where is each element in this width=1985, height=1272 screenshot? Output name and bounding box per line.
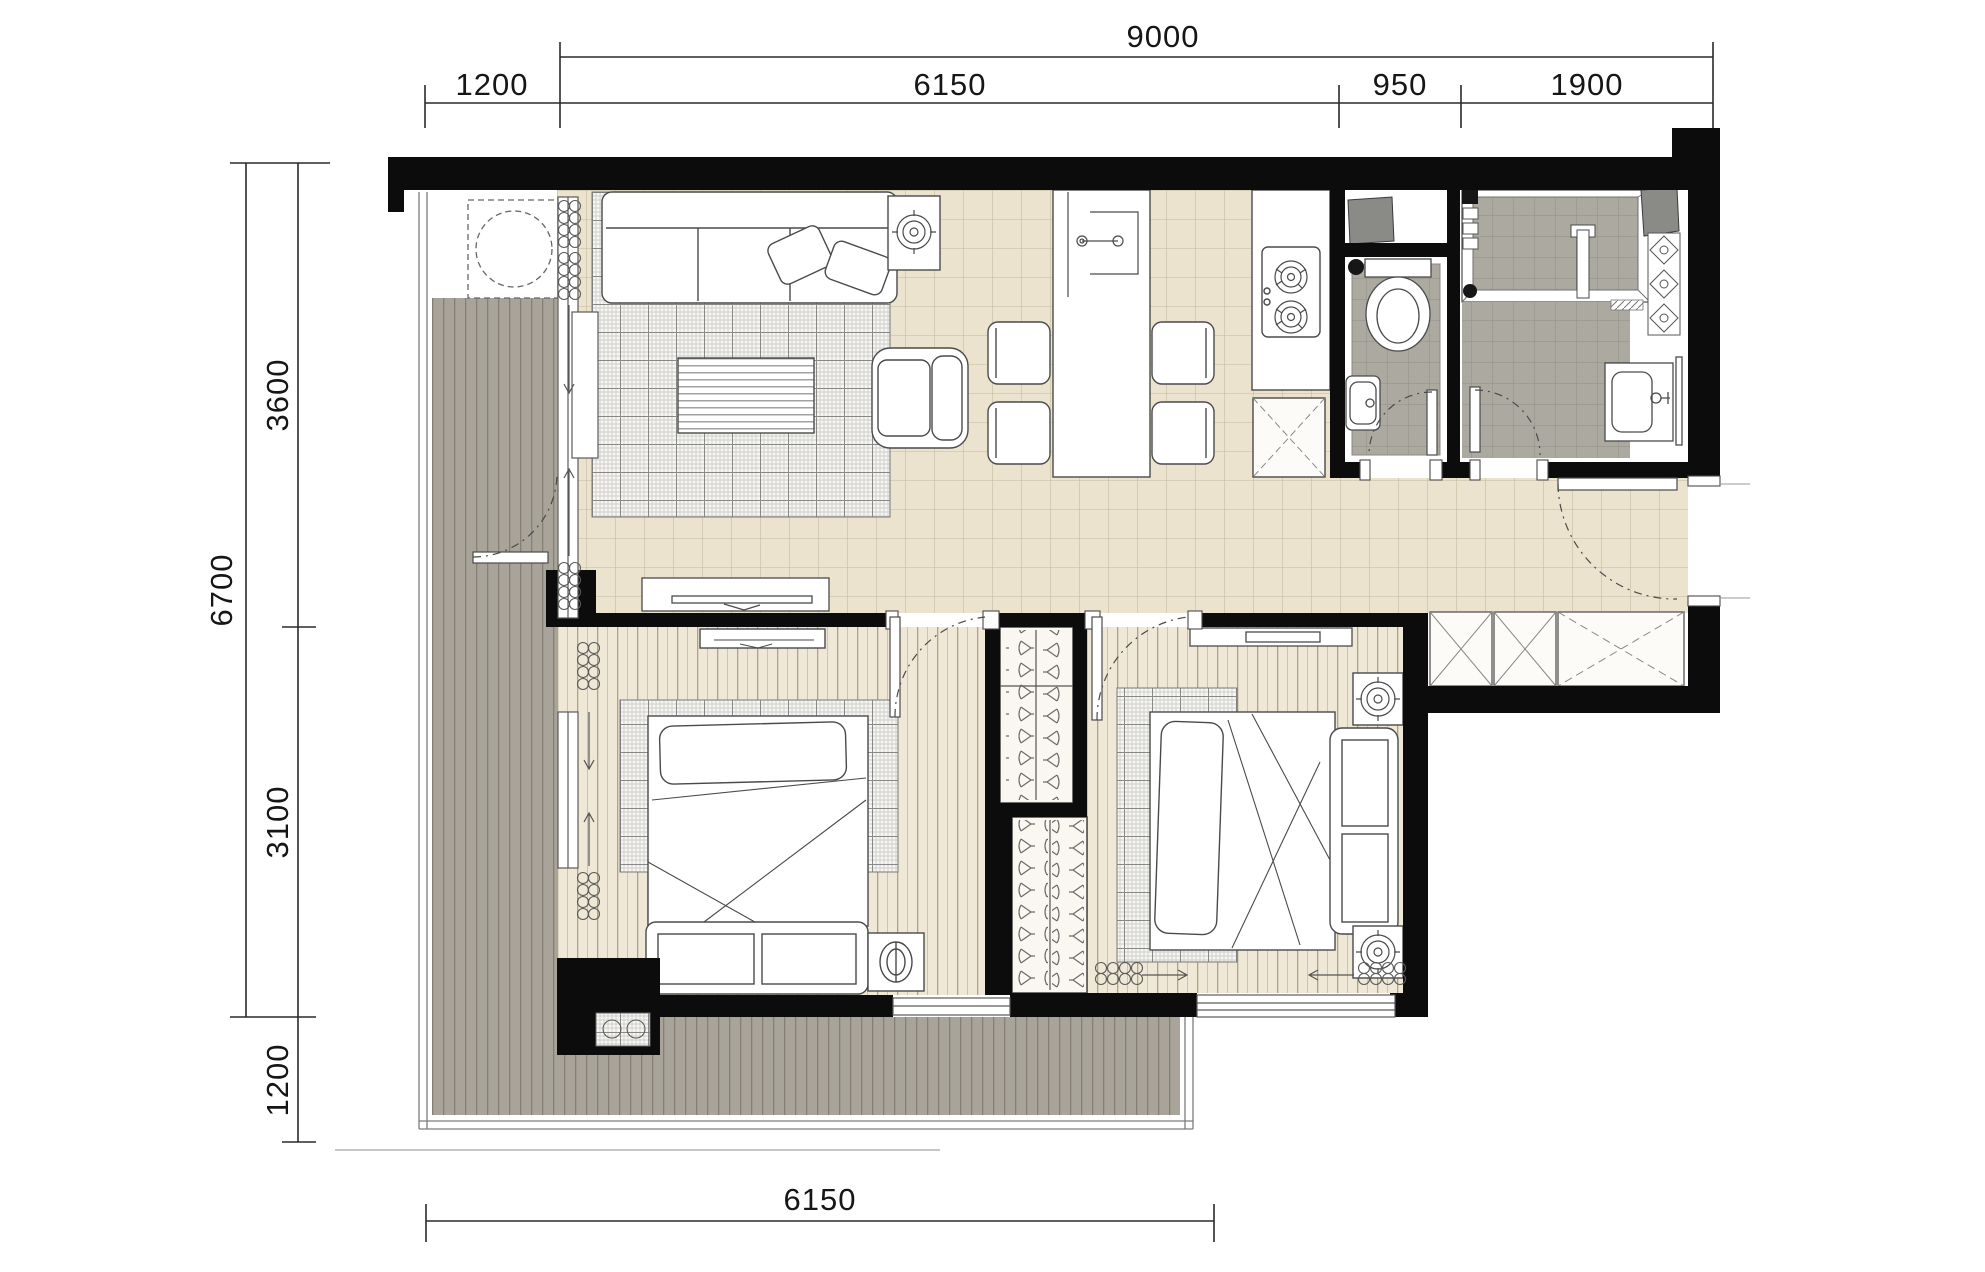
wall-wardrobe-b-left (1000, 817, 1012, 995)
shower-bar-icon (1577, 230, 1589, 298)
door-jamb (1360, 460, 1370, 480)
wall-bedroom-2-right (1403, 613, 1428, 1017)
water-heater-icon (1348, 197, 1394, 244)
dining-chair (1152, 322, 1214, 384)
wall-wardrobe-a-right (1073, 613, 1087, 817)
armchair-back (932, 356, 962, 440)
door-jamb (1470, 460, 1480, 480)
floor-plan-page: 9000 1200 6150 950 1900 6700 3600 3100 1… (0, 0, 1985, 1272)
wall-hall-bedroom-2 (1202, 613, 1428, 627)
wall-bottom-middle (1010, 993, 1197, 1017)
hanger-icon (1038, 630, 1066, 800)
balcony-utility-area (432, 190, 557, 298)
bed-1-footboard (646, 922, 868, 994)
column-drain (596, 1013, 650, 1046)
drain-icon (1463, 284, 1477, 298)
wall-niche-band (1330, 243, 1460, 257)
door-leaf-balcony (473, 552, 548, 563)
bath-shelf-item (1463, 223, 1478, 234)
dim-label-6150-top: 6150 (914, 67, 987, 102)
coffee-table (678, 358, 814, 433)
bath-shelf-item (1463, 208, 1478, 219)
sliding-door-panel (572, 312, 598, 458)
door-jamb (1430, 460, 1442, 480)
dim-label-1200-left: 1200 (260, 1044, 295, 1117)
hanger-icon (1006, 630, 1034, 800)
bedroom-2-bottom-window (1197, 995, 1395, 1017)
door-leaf-wc (1427, 390, 1437, 455)
dim-label-9000: 9000 (1127, 19, 1200, 54)
entry-closets (1430, 612, 1684, 686)
bed-2-pillow (1154, 721, 1223, 935)
wall-kitchen-bath (1330, 157, 1345, 478)
door-jamb (1688, 596, 1720, 606)
toilet-icon (1366, 277, 1430, 351)
dining-chair (988, 402, 1050, 464)
kitchen (1252, 190, 1330, 477)
door-jamb (983, 611, 999, 629)
tv-icon (1246, 632, 1320, 642)
dim-label-3100: 3100 (260, 786, 295, 859)
bath-mat (1611, 300, 1643, 310)
dim-label-6150-bottom: 6150 (784, 1182, 857, 1217)
wall-bottom-right-wing (1403, 686, 1720, 713)
dining-chair (988, 322, 1050, 384)
dim-label-1900: 1900 (1551, 67, 1624, 102)
wall-wardrobe-band (1000, 803, 1087, 817)
door-leaf-entry (1558, 478, 1677, 490)
dim-label-6700: 6700 (204, 554, 239, 627)
dining-chair (1152, 402, 1214, 464)
tv-console-hallway (642, 578, 829, 611)
towel-shelf-icon (1641, 188, 1679, 236)
dim-label-3600: 3600 (260, 359, 295, 432)
bathroom (1460, 188, 1688, 462)
door-leaf-bedroom-1 (890, 617, 900, 717)
wc-sink-icon (1346, 376, 1380, 430)
door-jamb (1537, 460, 1548, 480)
dim-label-1200-top: 1200 (456, 67, 529, 102)
floor-plan-drawing: 9000 1200 6150 950 1900 6700 3600 3100 1… (0, 0, 1985, 1272)
wall-bath-bottom (1540, 462, 1688, 478)
wall-over-wardrobe (985, 613, 1087, 627)
wall-hall-bedroom-1 (546, 613, 888, 627)
bath-shelf-item (1463, 238, 1478, 249)
wall-wc-bath (1447, 157, 1460, 478)
wall-right-upper (1688, 128, 1720, 482)
dim-label-950: 950 (1373, 67, 1428, 102)
drain-icon (1348, 259, 1364, 275)
balcony-deck-left (432, 298, 557, 1115)
balcony-deck-bottom (432, 1017, 1180, 1115)
toilet-tank (1365, 259, 1431, 277)
wall-bedroom-1-right (985, 627, 1000, 995)
armchair-seat (878, 360, 930, 436)
bathtub-tiled-bed (1473, 197, 1638, 290)
entry-jamb-lines (1720, 484, 1750, 598)
drain-grate (596, 1013, 650, 1046)
side-table (888, 196, 940, 270)
wall-stub-top-left (388, 190, 404, 212)
wall-bedroom-2-bottom-corner (1390, 993, 1428, 1017)
door-jamb (1188, 611, 1202, 629)
tv-console-bedroom-1 (700, 629, 825, 648)
shower-mixer-icon (1462, 188, 1478, 204)
bed-1-pillow (659, 722, 846, 785)
door-jamb (1688, 476, 1720, 486)
hanger-icon (1052, 820, 1084, 990)
wall-top (388, 157, 1720, 190)
door-leaf-bathroom (1470, 387, 1480, 452)
hanger-icon (1016, 820, 1048, 990)
tv-icon (672, 596, 812, 603)
mosaic-niche (1648, 233, 1680, 335)
door-leaf-bedroom-2 (1092, 617, 1102, 720)
